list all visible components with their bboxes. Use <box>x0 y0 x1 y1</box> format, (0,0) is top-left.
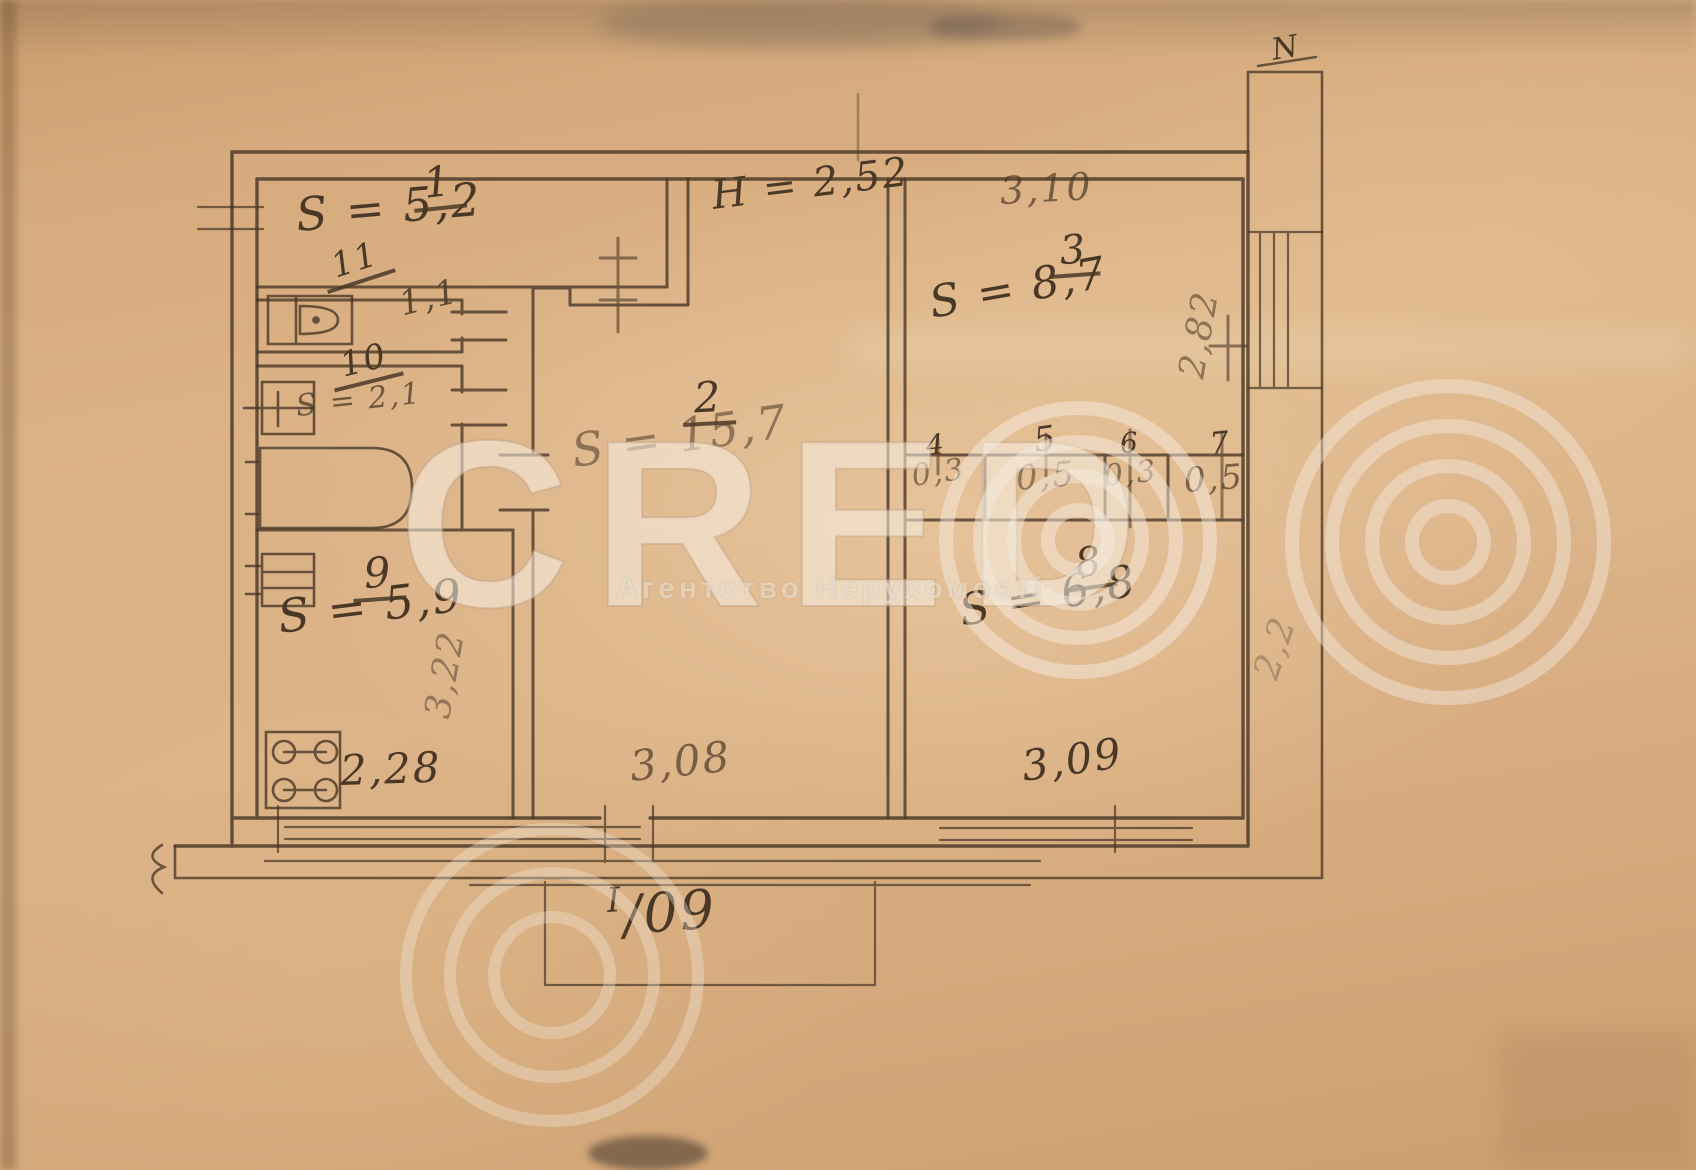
dim-room9-width: 2,28 <box>339 746 442 792</box>
entrance-floor-mark-upper: I <box>606 883 624 918</box>
entrance-zigzag <box>152 845 164 893</box>
window-bottom-right <box>940 828 1192 840</box>
bathtub-fixture <box>246 448 412 528</box>
room7-area: 0,5 <box>1183 460 1245 498</box>
toilet-fixture <box>268 296 352 344</box>
dim-room2-width: 3,08 <box>628 736 733 788</box>
entrance-floor-mark: I/09 <box>606 883 718 944</box>
watermark-subtitle: Агентство Нерухомості <box>616 572 1046 606</box>
dimension-ticks-bottom <box>278 806 1115 862</box>
room7-number: 7 <box>1208 428 1232 460</box>
balcony-right-hatch <box>1248 232 1322 388</box>
dim-room3-width: 3,10 <box>999 167 1093 210</box>
watermark-brand-letters: CRED <box>398 388 1160 661</box>
window-bottom-left <box>285 827 640 839</box>
north-mark: N <box>1269 31 1302 65</box>
stove-fixture <box>266 732 340 808</box>
scanned-floor-plan-photo: 1 S = 5,2 11 1,1 10 S = 2,1 9 S = 5,9 3,… <box>0 0 1696 1170</box>
entrance-floor-mark-lower: /09 <box>622 883 718 943</box>
riser-cross-1 <box>600 238 636 332</box>
